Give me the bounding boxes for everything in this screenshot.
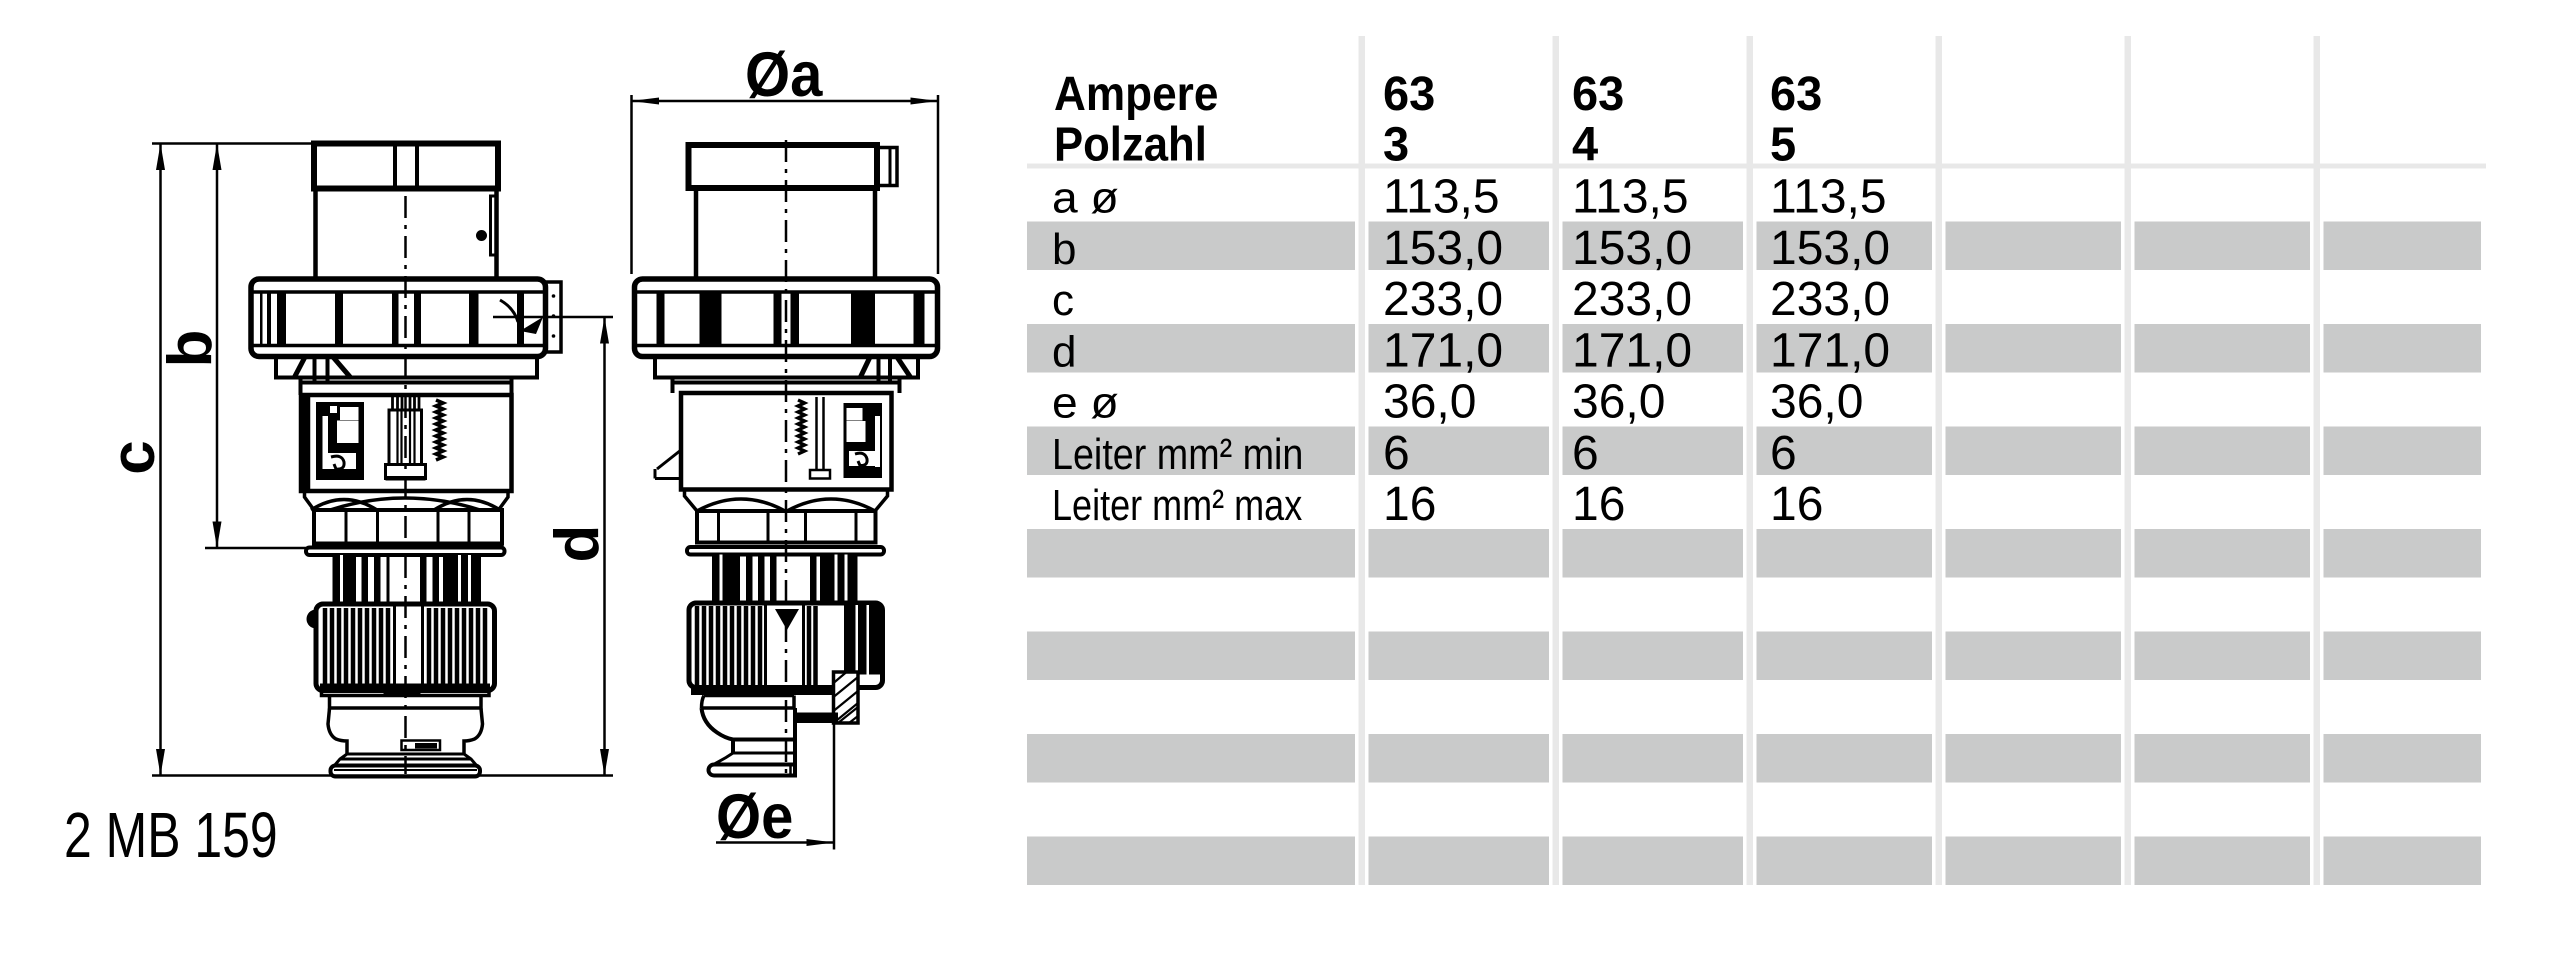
svg-text:16: 16	[1383, 478, 1436, 531]
svg-text:63: 63	[1383, 68, 1435, 122]
svg-text:c: c	[99, 440, 168, 474]
svg-text:36,0: 36,0	[1770, 376, 1863, 429]
svg-text:233,0: 233,0	[1383, 273, 1503, 326]
svg-text:233,0: 233,0	[1572, 273, 1692, 326]
svg-text:4: 4	[1572, 118, 1599, 172]
svg-text:d: d	[1052, 327, 1076, 376]
svg-text:e ø: e ø	[1052, 378, 1119, 428]
svg-text:2 MB 159: 2 MB 159	[64, 800, 278, 871]
svg-text:113,5: 113,5	[1770, 171, 1887, 224]
svg-text:Ampere: Ampere	[1054, 66, 1218, 120]
svg-text:Øe: Øe	[716, 781, 793, 852]
svg-text:c: c	[1052, 276, 1074, 325]
svg-text:153,0: 153,0	[1770, 222, 1890, 275]
svg-text:6: 6	[1572, 427, 1599, 480]
svg-text:171,0: 171,0	[1383, 324, 1503, 377]
svg-text:16: 16	[1572, 478, 1625, 531]
svg-text:b: b	[156, 330, 225, 368]
svg-text:3: 3	[1383, 118, 1409, 172]
svg-text:6: 6	[1383, 427, 1410, 480]
svg-text:63: 63	[1572, 68, 1624, 122]
svg-text:171,0: 171,0	[1770, 324, 1890, 377]
svg-text:233,0: 233,0	[1770, 273, 1890, 326]
svg-text:36,0: 36,0	[1383, 376, 1476, 429]
svg-text:Polzahl: Polzahl	[1054, 117, 1207, 171]
svg-text:63: 63	[1770, 68, 1822, 122]
svg-text:Leiter mm² max: Leiter mm² max	[1052, 481, 1302, 530]
svg-text:Leiter mm² min: Leiter mm² min	[1052, 429, 1303, 478]
svg-text:a ø: a ø	[1052, 173, 1119, 223]
svg-text:171,0: 171,0	[1572, 324, 1692, 377]
svg-text:Øa: Øa	[745, 39, 824, 110]
svg-text:36,0: 36,0	[1572, 376, 1665, 429]
svg-text:b: b	[1052, 225, 1076, 274]
svg-text:153,0: 153,0	[1572, 222, 1692, 275]
svg-text:d: d	[543, 525, 612, 563]
svg-text:16: 16	[1770, 478, 1823, 531]
svg-text:6: 6	[1770, 427, 1797, 480]
svg-text:5: 5	[1770, 118, 1796, 172]
svg-text:113,5: 113,5	[1383, 171, 1500, 224]
svg-text:153,0: 153,0	[1383, 222, 1503, 275]
svg-text:113,5: 113,5	[1572, 171, 1689, 224]
